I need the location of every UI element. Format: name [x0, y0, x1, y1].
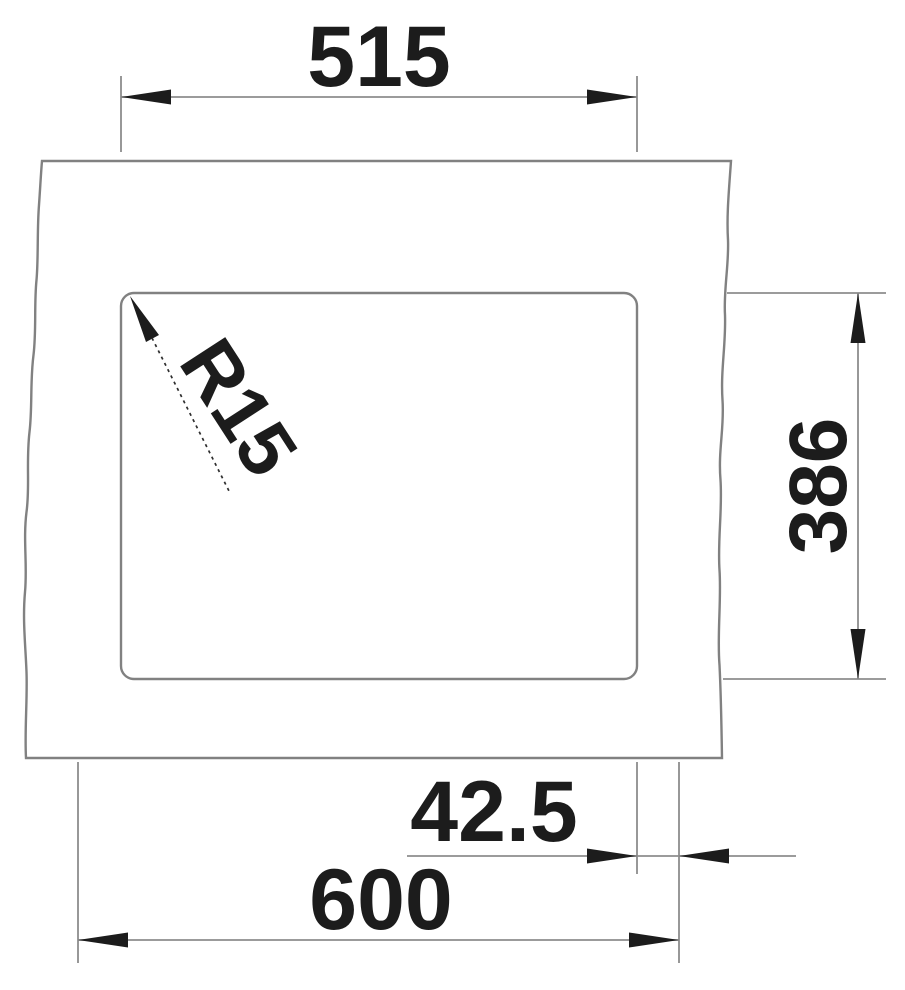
sink-drawing-svg: 515 386 42.5 600 R15 [0, 0, 905, 990]
dim-42-5-label: 42.5 [410, 764, 577, 860]
drawing-canvas: 515 386 42.5 600 R15 [0, 0, 905, 990]
countertop-outline [24, 161, 731, 758]
dim-515-label: 515 [307, 9, 451, 105]
dim-515-arrow-left-icon [121, 90, 171, 105]
dim-386-label: 386 [773, 418, 864, 555]
dim-600-arrow-left-icon [78, 933, 128, 948]
dim-42-5-arrow-left-icon [679, 849, 729, 864]
dim-600-label: 600 [309, 852, 453, 948]
dim-600-arrow-right-icon [629, 933, 679, 948]
dim-515-arrow-right-icon [587, 90, 637, 105]
dim-386-arrow-up-icon [851, 293, 866, 343]
radius-leader-arrow-icon [130, 296, 159, 342]
dim-386-arrow-down-icon [851, 629, 866, 679]
dim-42-5-arrow-right-icon [587, 849, 637, 864]
